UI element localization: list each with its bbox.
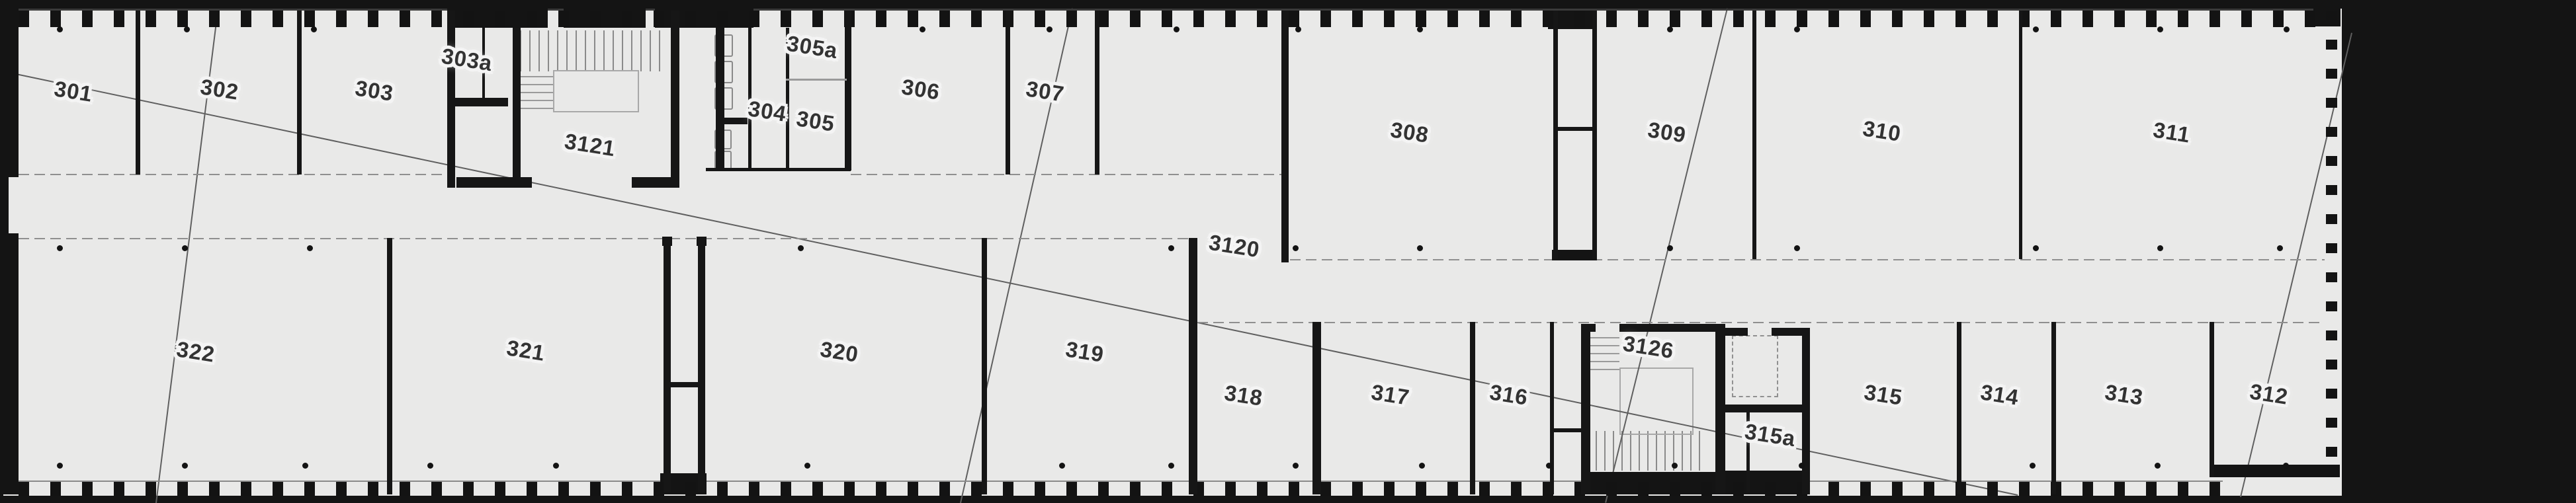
wall: [982, 238, 987, 494]
room-label-305: 305: [795, 107, 837, 135]
column-marker: [2283, 463, 2289, 469]
column-marker: [1293, 463, 1299, 469]
room-label-314: 314: [1979, 381, 2021, 408]
column-marker: [2277, 245, 2283, 251]
floor-plan: 3120 301302303303a3121304305305a30630730…: [0, 0, 2576, 503]
room-label-318: 318: [1223, 381, 1265, 409]
room-label-315: 315: [1863, 381, 1905, 408]
stair-treads-hatch: [1590, 336, 1619, 370]
column-marker: [920, 26, 925, 32]
wall: [456, 177, 532, 188]
wall: [1550, 428, 1582, 432]
room-label-313: 313: [2104, 381, 2145, 408]
wall: [1095, 11, 1099, 174]
wall: [1470, 322, 1475, 494]
column-marker: [1799, 463, 1805, 469]
column-marker: [1546, 463, 1552, 469]
room-label-304: 304: [747, 97, 789, 125]
wall: [664, 238, 671, 492]
wall: [1312, 322, 1321, 494]
room-label-306: 306: [900, 75, 942, 103]
column-marker: [2284, 26, 2290, 32]
corridor-partition-line: [19, 238, 1189, 239]
wall: [1553, 127, 1597, 131]
column-marker: [1794, 245, 1800, 251]
wall: [1006, 11, 1010, 174]
column-marker: [1667, 245, 1673, 251]
wall: [1619, 324, 1720, 332]
column-marker: [1168, 245, 1174, 251]
wall: [664, 382, 705, 387]
room-label-322: 322: [175, 338, 217, 366]
column-marker: [57, 26, 63, 32]
wall: [1592, 11, 1597, 259]
room-label-302: 302: [199, 75, 241, 103]
exterior-wall-segment: [2214, 465, 2340, 477]
corridor-partition-line: [19, 174, 447, 175]
wall: [716, 118, 748, 124]
stair-treads-hatch: [520, 71, 553, 109]
column-marker: [1417, 26, 1423, 32]
wall: [297, 11, 302, 174]
column-marker: [182, 245, 188, 251]
room-label-311: 311: [2152, 118, 2192, 145]
wall: [1720, 405, 1802, 412]
column-marker: [1672, 463, 1678, 469]
facade-right-dashed-edge: [2326, 11, 2337, 477]
column-marker: [57, 245, 63, 251]
wall: [1550, 322, 1554, 494]
exterior-wall-segment: [1552, 250, 1597, 260]
column-marker: [57, 463, 63, 469]
column-marker: [804, 463, 810, 469]
column-marker: [1794, 26, 1800, 32]
room-label-309: 309: [1647, 118, 1688, 146]
wall: [452, 98, 508, 106]
wall: [1581, 324, 1596, 332]
wall: [1772, 328, 1810, 336]
room-label-319: 319: [1064, 338, 1106, 366]
column-marker: [1059, 463, 1065, 469]
wall: [513, 28, 521, 188]
column-marker: [1419, 463, 1425, 469]
column-marker: [1295, 26, 1301, 32]
column-marker: [302, 463, 308, 469]
exterior-wall-segment: [3, 9, 19, 177]
room-label-301: 301: [53, 77, 95, 105]
wall: [706, 168, 851, 171]
wall: [671, 11, 679, 188]
column-marker: [307, 245, 313, 251]
plan-paper: [3, 9, 2342, 496]
wall: [136, 11, 140, 174]
column-marker: [1168, 463, 1174, 469]
column-marker: [427, 463, 433, 469]
column-marker: [311, 26, 317, 32]
wall: [1581, 324, 1590, 494]
column-marker: [2157, 26, 2163, 32]
wall: [1752, 11, 1756, 259]
column-marker: [1047, 26, 1052, 32]
column-marker: [1174, 26, 1180, 32]
facade-top-mullions: [19, 11, 2323, 27]
room-label-320: 320: [819, 338, 861, 366]
light-partition-wall: [786, 79, 847, 81]
corridor-partition-line: [851, 174, 1281, 175]
column-marker: [2033, 26, 2039, 32]
wall: [1553, 11, 1558, 259]
stair-treads-hatch: [520, 30, 668, 71]
column-marker: [553, 463, 559, 469]
wall: [1281, 11, 1289, 262]
room-label-312: 312: [2249, 380, 2290, 408]
stair-treads-hatch: [1596, 431, 1707, 471]
room-label-310: 310: [1862, 117, 1903, 145]
room-label-317: 317: [1370, 381, 1412, 408]
elevator-shaft-outline: [1732, 335, 1778, 397]
wall: [632, 177, 675, 188]
wall: [2210, 322, 2214, 477]
room-label-303: 303: [354, 77, 396, 104]
corridor-partition-line: [1290, 259, 2325, 260]
column-marker: [2157, 245, 2163, 251]
exterior-wall-segment: [3, 177, 9, 233]
column-marker: [1417, 245, 1423, 251]
facade-bottom-mullions: [19, 482, 2223, 496]
wall: [716, 28, 724, 171]
wall: [1189, 238, 1197, 494]
column-marker: [182, 463, 188, 469]
column-marker: [1293, 245, 1299, 251]
wall: [1802, 328, 1810, 494]
wall: [698, 238, 705, 492]
column-marker: [2155, 463, 2161, 469]
column-marker: [184, 26, 190, 32]
wall: [1957, 322, 1961, 494]
column-marker: [798, 245, 804, 251]
corridor-partition-line: [1197, 322, 2325, 323]
exterior-wall-segment: [3, 233, 19, 494]
room-label-321: 321: [505, 336, 547, 364]
stair-landing-outline: [553, 70, 639, 112]
wall: [2019, 11, 2022, 259]
column-marker: [2030, 463, 2036, 469]
wall: [845, 11, 851, 171]
wall: [1720, 328, 1748, 336]
room-label-308: 308: [1389, 118, 1431, 146]
room-label-307: 307: [1025, 77, 1066, 105]
wall: [2051, 322, 2056, 494]
column-marker: [2033, 245, 2039, 251]
wall: [387, 238, 392, 494]
room-label-316: 316: [1488, 381, 1530, 408]
floor-plan-canvas: 3120 301302303303a3121304305305a30630730…: [0, 0, 2576, 503]
column-marker: [1667, 26, 1673, 32]
